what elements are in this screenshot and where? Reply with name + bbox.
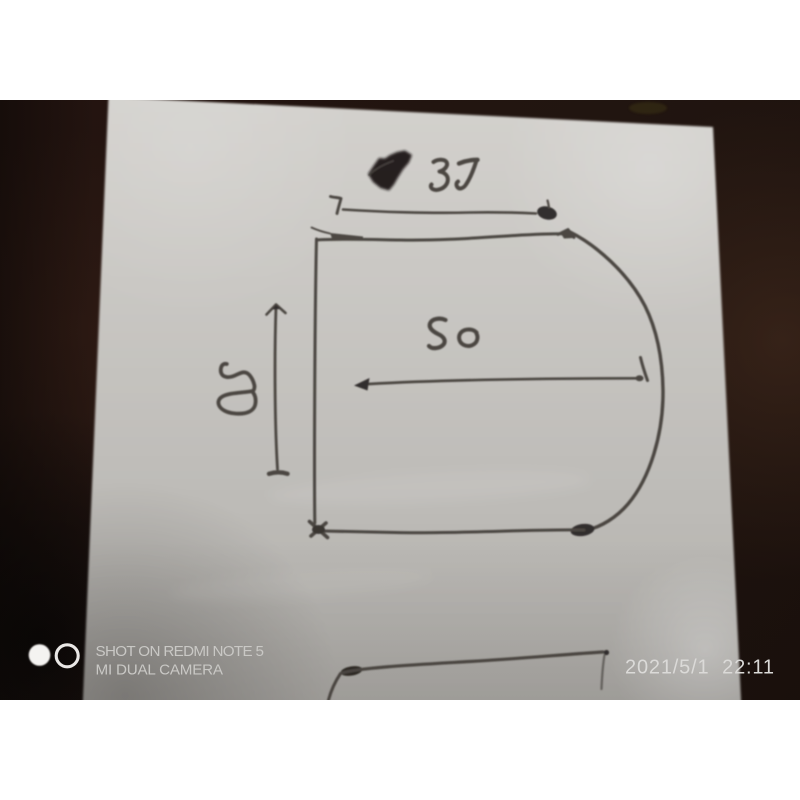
svg-text:SHOT ON REDMI NOTE 5: SHOT ON REDMI NOTE 5 xyxy=(96,643,265,660)
svg-text:MI DUAL CAMERA: MI DUAL CAMERA xyxy=(96,662,224,679)
svg-text:2021/5/1 22:11: 2021/5/1 22:11 xyxy=(625,657,774,679)
